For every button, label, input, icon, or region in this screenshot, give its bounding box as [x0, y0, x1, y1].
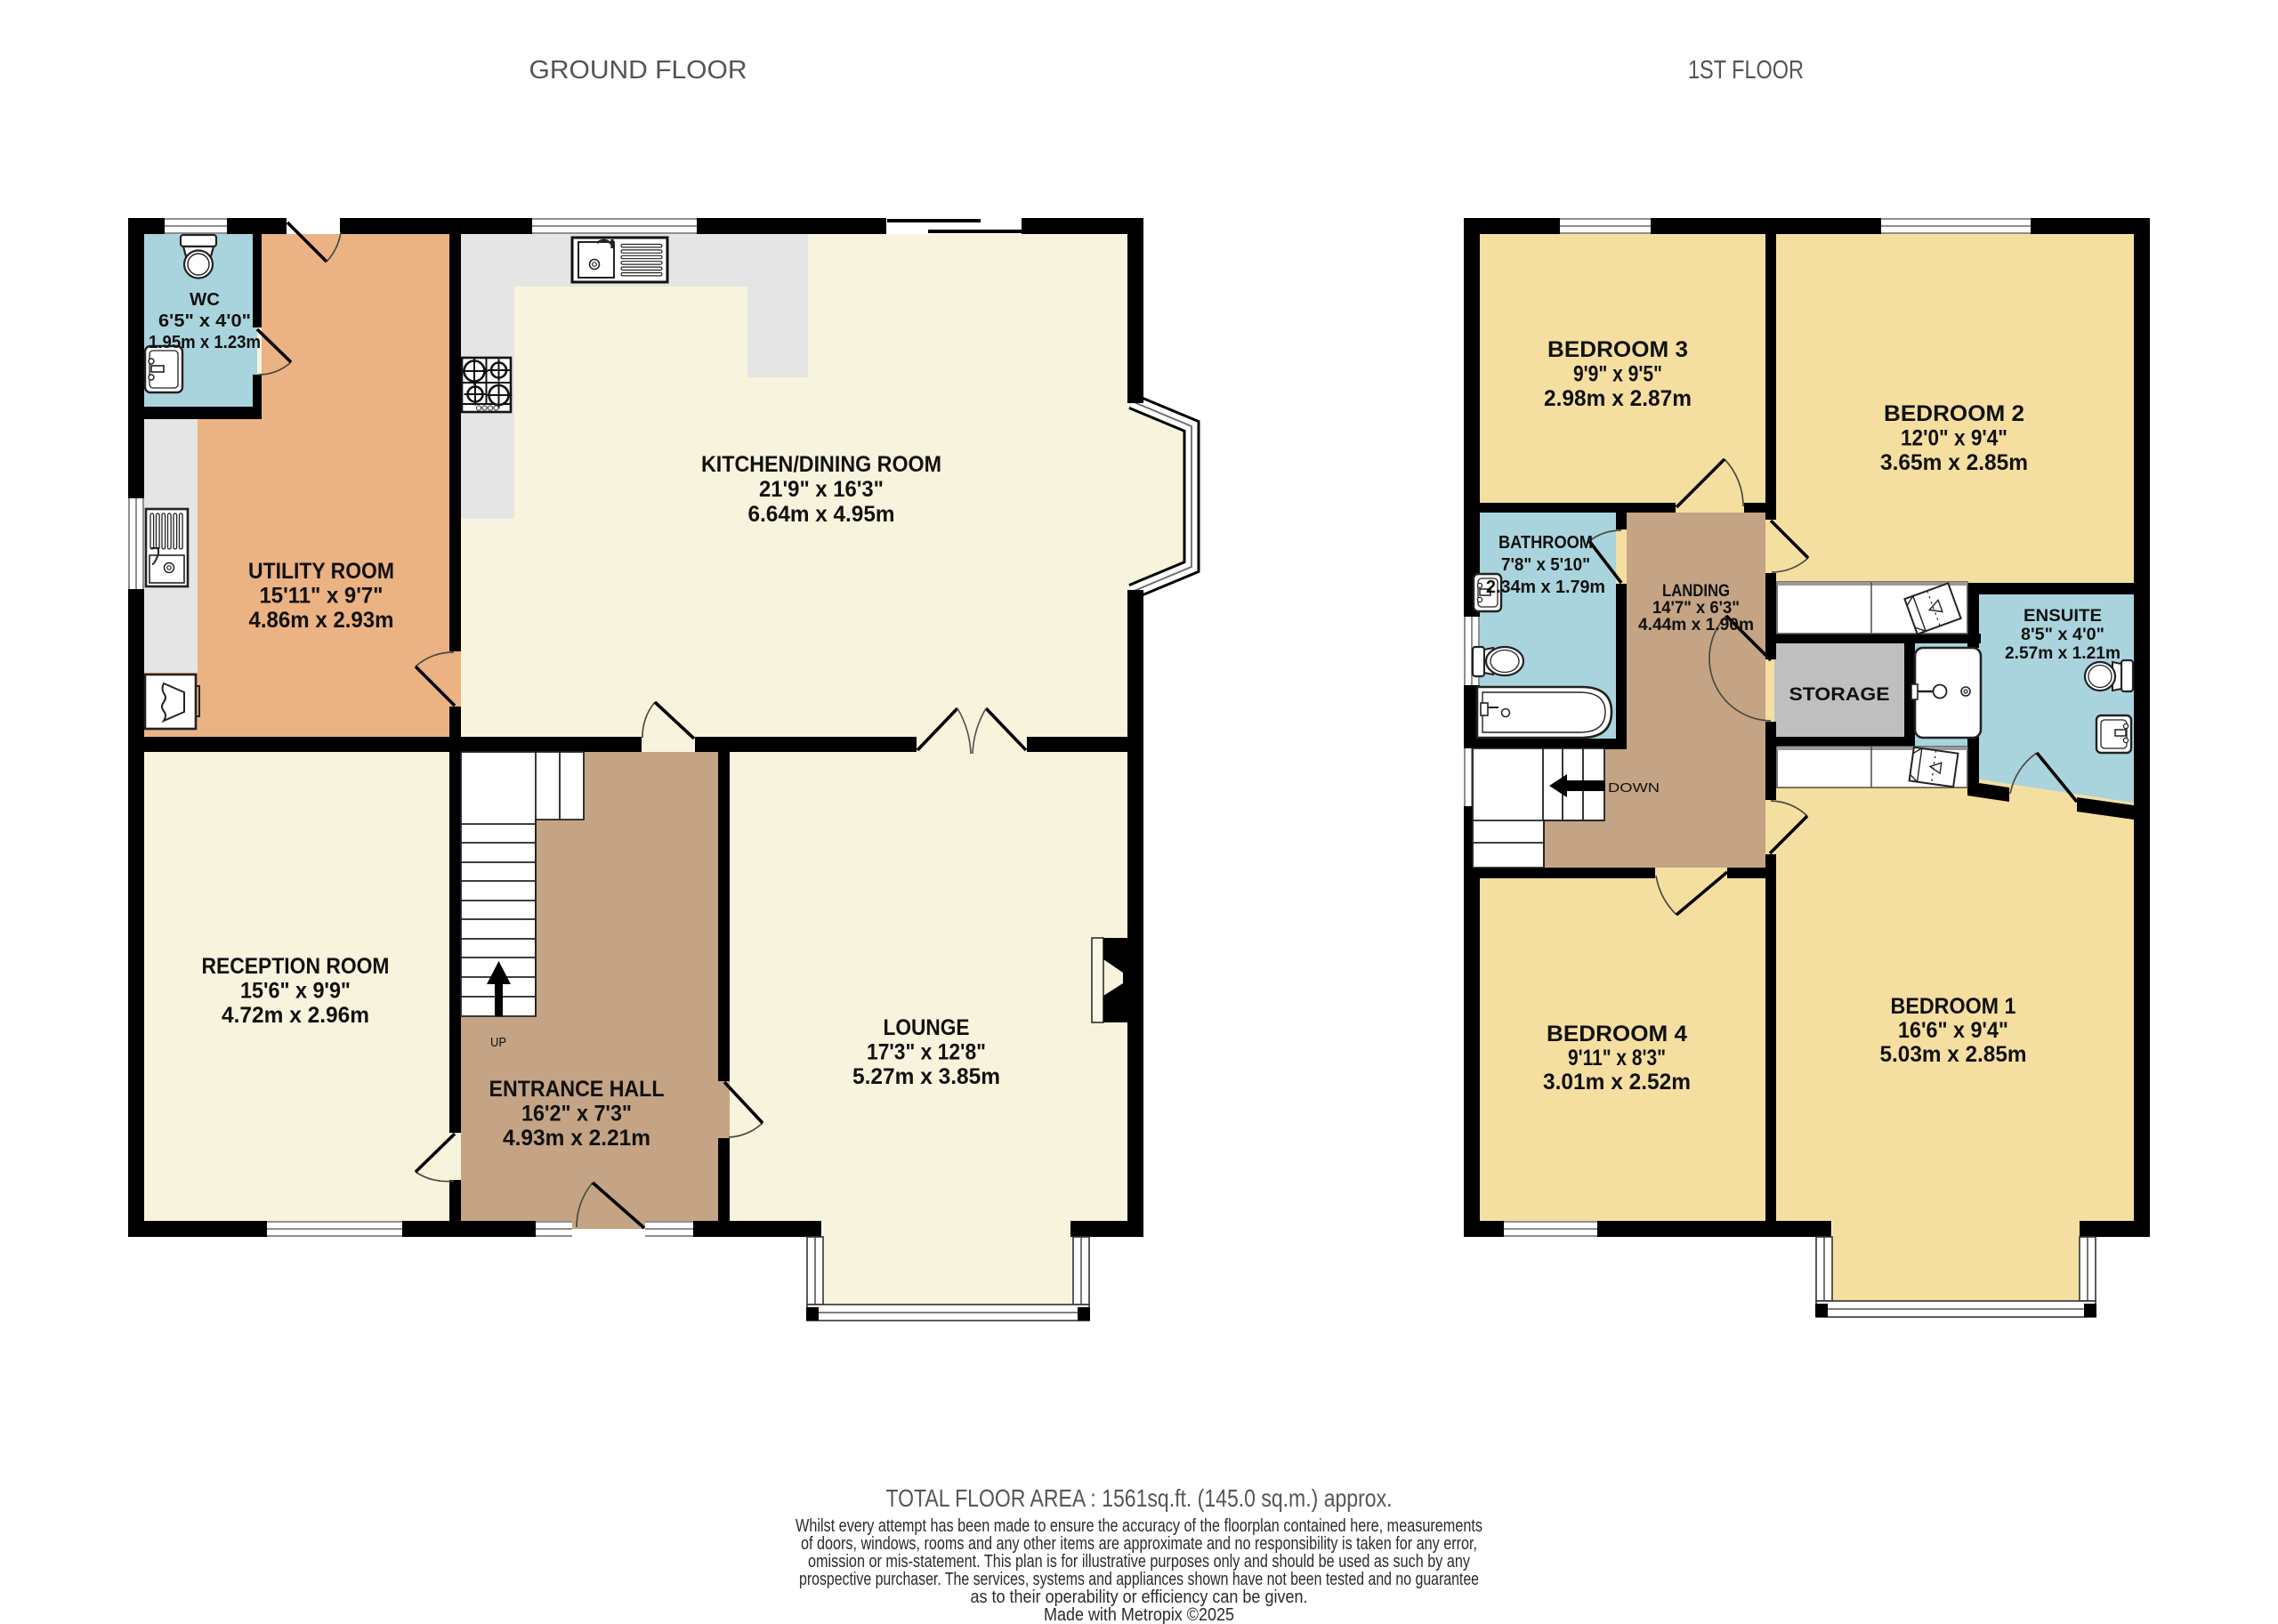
svg-text:6'5" x 4'0": 6'5" x 4'0": [158, 311, 251, 331]
svg-text:3.65m x 2.85m: 3.65m x 2.85m: [1880, 450, 2028, 475]
svg-text:2.34m x 1.79m: 2.34m x 1.79m: [1486, 578, 1605, 597]
svg-text:DOWN: DOWN: [1608, 780, 1660, 796]
svg-text:4.44m x 1.90m: 4.44m x 1.90m: [1638, 615, 1754, 634]
svg-text:BEDROOM 3: BEDROOM 3: [1547, 337, 1688, 362]
svg-text:4.86m x 2.93m: 4.86m x 2.93m: [249, 608, 394, 633]
svg-text:8'5" x 4'0": 8'5" x 4'0": [2021, 625, 2104, 644]
svg-text:16'2" x 7'3": 16'2" x 7'3": [521, 1102, 632, 1127]
svg-text:KITCHEN/DINING ROOM: KITCHEN/DINING ROOM: [701, 452, 941, 477]
svg-text:15'6" x 9'9": 15'6" x 9'9": [240, 979, 351, 1004]
svg-text:6.64m x 4.95m: 6.64m x 4.95m: [748, 502, 895, 527]
svg-text:16'6" x 9'4": 16'6" x 9'4": [1898, 1018, 2008, 1043]
svg-text:1.95m x 1.23m: 1.95m x 1.23m: [149, 333, 261, 352]
svg-text:ENSUITE: ENSUITE: [2024, 606, 2102, 626]
svg-text:5.27m x 3.85m: 5.27m x 3.85m: [852, 1064, 1000, 1089]
svg-text:BEDROOM 1: BEDROOM 1: [1891, 994, 2016, 1019]
svg-text:omission or mis-statement. Thi: omission or mis-statement. This plan is …: [808, 1552, 1470, 1571]
svg-text:BEDROOM 4: BEDROOM 4: [1547, 1022, 1687, 1046]
svg-text:prospective purchaser. The ser: prospective purchaser. The services, sys…: [799, 1570, 1479, 1589]
svg-text:GROUND FLOOR: GROUND FLOOR: [529, 56, 747, 85]
svg-text:9'9" x 9'5": 9'9" x 9'5": [1573, 362, 1662, 387]
svg-text:15'11" x 9'7": 15'11" x 9'7": [260, 584, 384, 609]
svg-text:7'8" x 5'10": 7'8" x 5'10": [1501, 555, 1590, 575]
svg-text:2.57m x 1.21m: 2.57m x 1.21m: [2005, 643, 2120, 663]
svg-text:21'9" x 16'3": 21'9" x 16'3": [759, 477, 884, 502]
svg-text:BATHROOM: BATHROOM: [1498, 533, 1593, 553]
svg-text:STORAGE: STORAGE: [1789, 684, 1890, 705]
svg-text:TOTAL FLOOR AREA : 1561sq.ft.: TOTAL FLOOR AREA : 1561sq.ft. (145.0 sq.…: [886, 1484, 1393, 1512]
svg-text:UP: UP: [490, 1035, 506, 1050]
svg-text:RECEPTION ROOM: RECEPTION ROOM: [202, 954, 390, 979]
svg-text:WC: WC: [190, 290, 220, 310]
svg-text:2.98m x 2.87m: 2.98m x 2.87m: [1544, 386, 1692, 411]
svg-text:12'0" x 9'4": 12'0" x 9'4": [1901, 426, 2007, 451]
svg-text:3.01m x 2.52m: 3.01m x 2.52m: [1543, 1070, 1691, 1095]
svg-text:5.03m x 2.85m: 5.03m x 2.85m: [1880, 1042, 2027, 1067]
svg-text:17'3" x 12'8": 17'3" x 12'8": [867, 1040, 986, 1065]
svg-text:4.93m x 2.21m: 4.93m x 2.21m: [503, 1126, 650, 1151]
svg-text:Whilst every attempt has been: Whilst every attempt has been made to en…: [796, 1516, 1482, 1536]
svg-text:of doors, windows, rooms and a: of doors, windows, rooms and any other i…: [801, 1534, 1477, 1554]
svg-text:as to their operability or eff: as to their operability or efficiency ca…: [971, 1588, 1308, 1607]
svg-text:Made with Metropix ©2025: Made with Metropix ©2025: [1044, 1605, 1234, 1624]
svg-text:4.72m x 2.96m: 4.72m x 2.96m: [222, 1003, 369, 1028]
svg-text:9'11" x 8'3": 9'11" x 8'3": [1568, 1046, 1666, 1071]
svg-text:BEDROOM 2: BEDROOM 2: [1884, 401, 2024, 426]
svg-text:ENTRANCE HALL: ENTRANCE HALL: [489, 1077, 665, 1102]
svg-text:LOUNGE: LOUNGE: [884, 1015, 970, 1040]
svg-text:UTILITY ROOM: UTILITY ROOM: [248, 559, 394, 584]
svg-text:1ST FLOOR: 1ST FLOOR: [1688, 56, 1804, 85]
